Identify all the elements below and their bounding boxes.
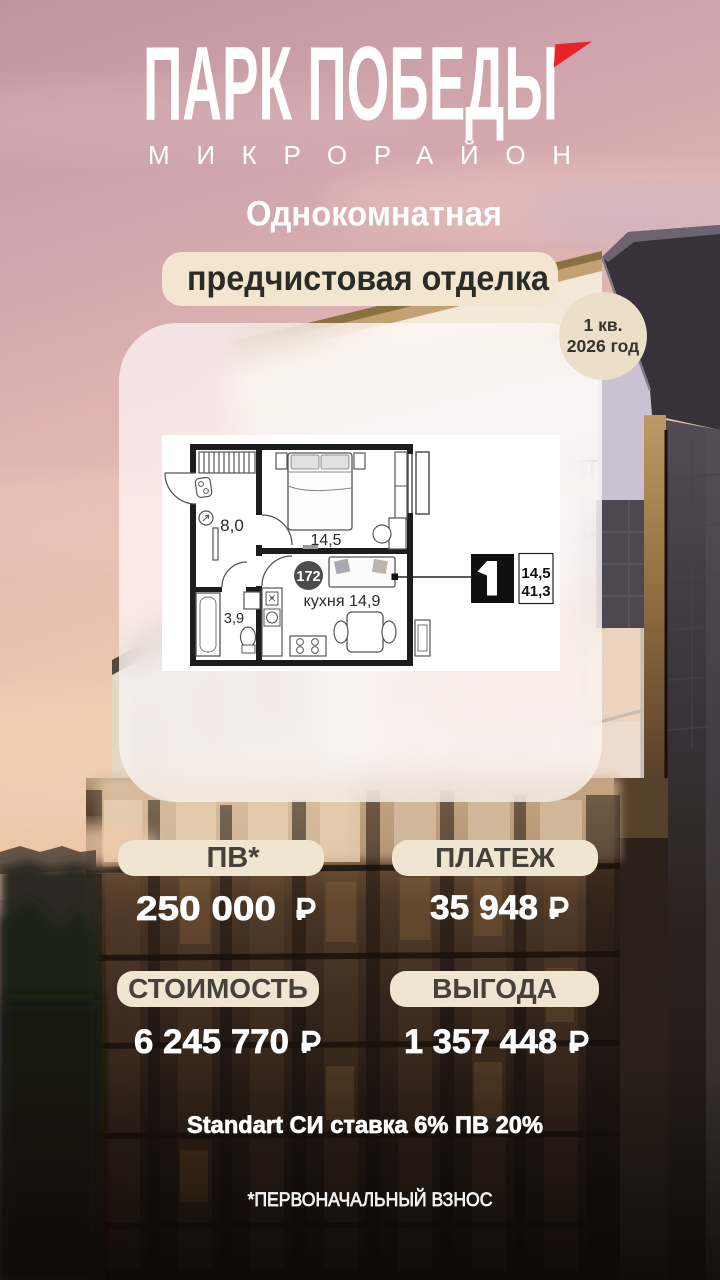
svg-text:Standart СИ ставка 6% ПВ 20%: Standart СИ ставка 6% ПВ 20% [187, 1112, 543, 1139]
svg-text:35 948: 35 948 [430, 889, 538, 927]
svg-text:6 245 770: 6 245 770 [134, 1023, 289, 1061]
svg-text:*ПЕРВОНАЧАЛЬНЫЙ ВЗНОС: *ПЕРВОНАЧАЛЬНЫЙ ВЗНОС [248, 1187, 493, 1211]
svg-text:250 000: 250 000 [136, 890, 276, 928]
svg-text:1 357 448: 1 357 448 [404, 1023, 557, 1061]
